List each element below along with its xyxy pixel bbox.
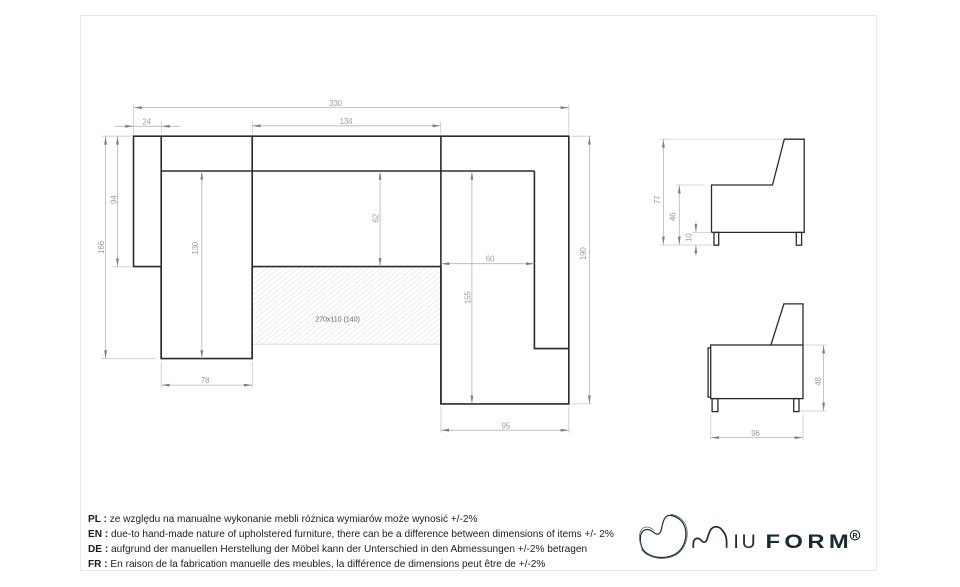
svg-text:FORM: FORM <box>766 530 854 552</box>
svg-text:155: 155 <box>464 291 473 304</box>
svg-text:134: 134 <box>340 117 353 126</box>
svg-text:96: 96 <box>751 429 760 438</box>
svg-text:10: 10 <box>685 233 694 242</box>
svg-text:190: 190 <box>579 247 588 260</box>
svg-text:46: 46 <box>668 212 677 221</box>
svg-text:24: 24 <box>142 117 151 126</box>
svg-text:78: 78 <box>201 376 210 385</box>
svg-text:95: 95 <box>502 421 511 430</box>
svg-text:62: 62 <box>371 213 380 222</box>
svg-text:94: 94 <box>110 195 119 204</box>
svg-text:60: 60 <box>486 255 495 264</box>
svg-text:330: 330 <box>329 99 342 108</box>
svg-text:130: 130 <box>191 241 200 254</box>
svg-text:48: 48 <box>814 377 823 386</box>
svg-text:166: 166 <box>97 240 106 253</box>
svg-text:IU: IU <box>733 531 758 553</box>
svg-text:77: 77 <box>653 195 662 204</box>
svg-text:R: R <box>852 533 857 540</box>
svg-text:270x110 (140): 270x110 (140) <box>315 314 360 323</box>
